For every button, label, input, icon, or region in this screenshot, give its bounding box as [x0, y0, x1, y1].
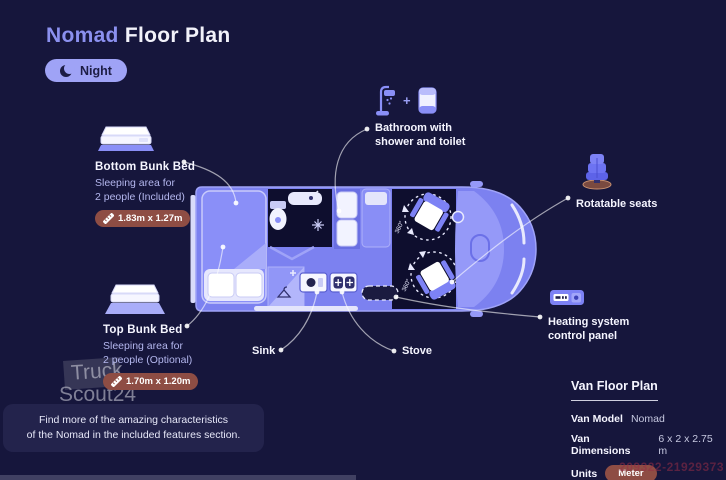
kitchen-stove	[330, 273, 357, 292]
heating-vent-dashed	[362, 286, 398, 300]
page-title-rest: Floor Plan	[125, 24, 231, 47]
van-model-label: Van Model	[571, 413, 623, 425]
bottom-bunk-description: Sleeping area for 2 people (Included)	[95, 176, 235, 204]
listing-ref-number: 209322-21929373	[619, 460, 724, 474]
dinette-area	[334, 189, 390, 249]
side-mirror	[470, 181, 483, 187]
control-panel-icon	[550, 290, 584, 305]
bathroom-icons: +	[375, 84, 495, 117]
units-label: Units	[571, 468, 597, 480]
side-step	[254, 306, 358, 311]
moon-icon	[60, 65, 72, 77]
night-mode-toggle[interactable]: Night	[45, 59, 127, 82]
callout-top-bunk-bed: Top Bunk Bed Sleeping area for 2 people …	[103, 283, 243, 392]
van-dimensions-value: 6 x 2 x 2.75 m	[658, 433, 723, 457]
heating-label: Heating system control panel	[548, 315, 658, 343]
ruler-icon	[103, 213, 114, 224]
note-box: Find more of the amazing characteristics…	[3, 404, 264, 452]
top-bunk-bed-icon	[105, 283, 165, 316]
bottom-edge-strip	[0, 475, 356, 480]
shower-icon	[375, 84, 397, 117]
kitchen-sink	[300, 273, 327, 292]
callout-rotatable-seats: Rotatable seats	[576, 152, 686, 211]
page-title: Nomad Floor Plan	[46, 24, 231, 48]
van-model-value: Nomad	[631, 413, 665, 425]
bottom-bunk-dimensions: 1.83m x 1.27m	[118, 213, 182, 224]
top-bunk-description: Sleeping area for 2 people (Optional)	[103, 339, 243, 367]
top-bunk-title: Top Bunk Bed	[103, 324, 243, 336]
toilet-icon	[417, 86, 438, 115]
floor-plan-infographic: Nomad Floor Plan Night Bottom Bunk Bed S…	[0, 0, 726, 480]
ruler-icon	[111, 376, 122, 387]
sink-label: Sink	[252, 344, 275, 358]
swivel-seat-icon	[580, 152, 614, 190]
night-mode-label: Night	[80, 64, 112, 78]
top-bunk-dimensions: 1.70m x 1.20m	[126, 376, 190, 387]
van-info-title: Van Floor Plan	[571, 379, 658, 401]
bottom-bunk-bed-icon	[98, 126, 154, 153]
van-model-row: Van Model Nomad	[571, 413, 723, 425]
rotatable-seats-label: Rotatable seats	[576, 197, 686, 211]
callout-bottom-bunk-bed: Bottom Bunk Bed Sleeping area for 2 peop…	[95, 126, 235, 229]
bottom-bunk-dimensions-badge: 1.83m x 1.27m	[95, 210, 190, 227]
steering-wheel	[453, 212, 464, 223]
callout-bathroom: + Bathroom with shower and toilet	[375, 84, 495, 149]
stove-label: Stove	[402, 344, 432, 358]
plus-icon: +	[403, 93, 411, 108]
side-mirror	[470, 311, 483, 317]
van-dimensions-label: Van Dimensions	[571, 433, 650, 457]
top-bunk-dimensions-badge: 1.70m x 1.20m	[103, 373, 198, 390]
van-dimensions-row: Van Dimensions 6 x 2 x 2.75 m	[571, 433, 723, 457]
callout-heating: Heating system control panel	[548, 290, 658, 343]
bathroom-label: Bathroom with shower and toilet	[375, 121, 495, 149]
page-title-model: Nomad	[46, 24, 119, 47]
bottom-bunk-title: Bottom Bunk Bed	[95, 161, 235, 173]
